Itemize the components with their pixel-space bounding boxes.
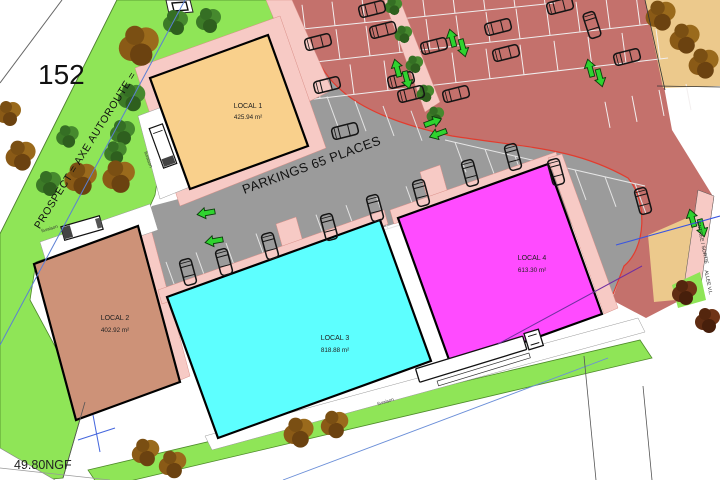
local-4-name: LOCAL 4	[518, 255, 547, 262]
local-2-area: 402.92 m²	[101, 327, 129, 334]
elevation-label: 49.80NGF	[14, 458, 72, 472]
local-1-area: 425.94 m²	[234, 114, 262, 121]
local-1-name: LOCAL 1	[234, 103, 263, 110]
site-plan: LOCAL 1 425.94 m² LOCAL 2 402.92 m² LOCA…	[0, 0, 720, 480]
parcel-number: 152	[38, 59, 85, 90]
local-4-area: 613.30 m²	[518, 267, 546, 274]
local-2-name: LOCAL 2	[101, 315, 130, 322]
local-3-area: 818.88 m²	[321, 347, 349, 354]
local-3-name: LOCAL 3	[321, 335, 350, 342]
